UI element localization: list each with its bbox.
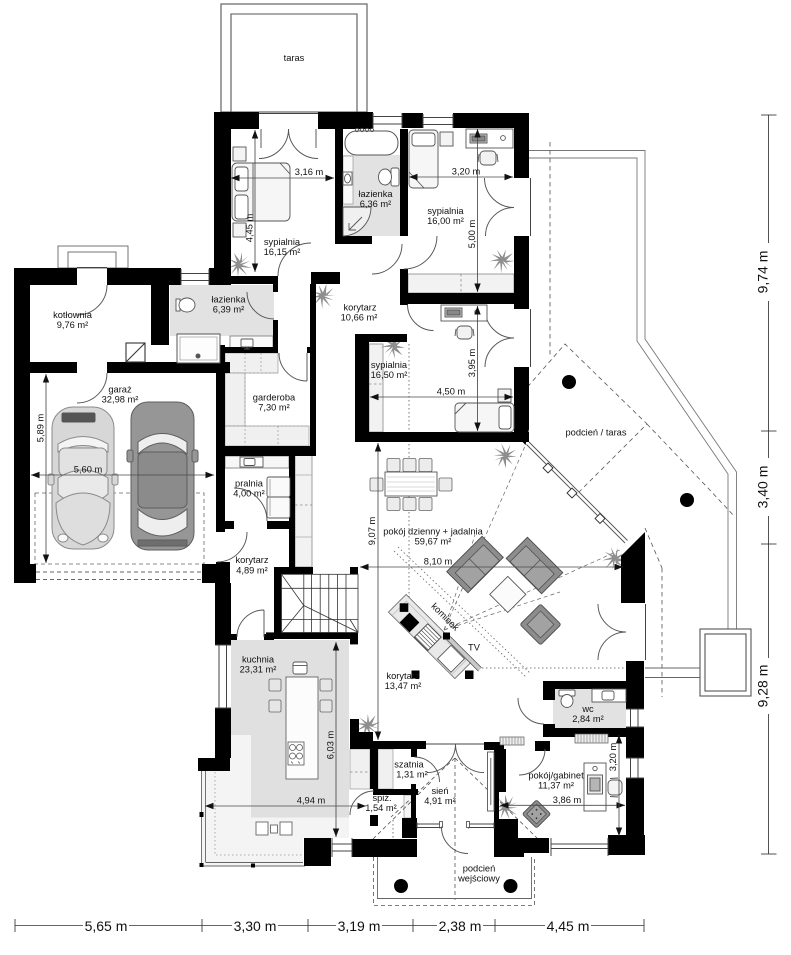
svg-text:kotłownia: kotłownia [53,310,93,320]
svg-text:sypialnia: sypialnia [371,360,408,370]
svg-text:4,00 m²: 4,00 m² [233,489,265,499]
svg-text:korytarz: korytarz [343,303,376,313]
svg-text:1,54 m²: 1,54 m² [365,803,397,813]
svg-text:16,15 m²: 16,15 m² [264,247,301,257]
svg-text:wc: wc [581,704,594,714]
svg-text:16,00 m²: 16,00 m² [427,216,464,226]
svg-text:23,31 m²: 23,31 m² [240,665,277,675]
svg-text:10,66 m²: 10,66 m² [341,313,378,323]
svg-text:łazienka: łazienka [211,295,246,305]
svg-text:3,20 m: 3,20 m [608,743,618,772]
svg-text:taras: taras [284,53,305,63]
svg-text:11,37 m²: 11,37 m² [538,781,574,791]
svg-text:13,47 m²: 13,47 m² [385,681,422,691]
svg-text:podcień: podcień [463,864,496,874]
svg-text:16,50 m²: 16,50 m² [371,370,408,380]
svg-text:4,45 m: 4,45 m [245,214,255,243]
svg-text:5,60 m: 5,60 m [74,465,103,475]
svg-text:4,45 m: 4,45 m [547,918,590,934]
svg-text:4,89 m²: 4,89 m² [236,566,268,576]
svg-text:wejściowy: wejściowy [457,874,500,884]
svg-text:6,03 m: 6,03 m [326,731,336,760]
svg-text:szatnia: szatnia [394,760,424,770]
svg-text:pokój/gabinet: pokój/gabinet [528,771,584,781]
svg-text:kuchnia: kuchnia [242,655,275,665]
svg-text:garaż: garaż [108,385,132,395]
svg-text:3,19 m: 3,19 m [338,918,381,934]
svg-text:6,36 m²: 6,36 m² [360,199,392,209]
svg-text:3,30 m: 3,30 m [234,918,277,934]
svg-text:korytarz: korytarz [386,671,419,681]
svg-text:3,86 m: 3,86 m [553,795,582,805]
svg-text:3,20 m: 3,20 m [452,167,481,177]
svg-text:pokój dzienny + jadalnia: pokój dzienny + jadalnia [383,527,483,537]
svg-text:garderoba: garderoba [253,393,296,403]
svg-text:5,65 m: 5,65 m [85,918,128,934]
svg-text:sypialnia: sypialnia [427,206,464,216]
svg-text:podcień / taras: podcień / taras [566,428,627,438]
svg-text:4,94 m: 4,94 m [297,796,326,806]
svg-text:5,89 m: 5,89 m [36,414,46,443]
svg-text:3,16 m: 3,16 m [295,167,324,177]
svg-text:9,74 m: 9,74 m [755,251,771,294]
svg-text:łazienka: łazienka [358,189,393,199]
svg-text:7,30 m²: 7,30 m² [258,403,290,413]
svg-text:9,28 m: 9,28 m [755,665,771,708]
svg-text:59,67 m²: 59,67 m² [415,537,452,547]
svg-text:TV: TV [468,643,481,653]
svg-text:4,50 m: 4,50 m [437,387,466,397]
svg-text:spiż.: spiż. [372,793,391,803]
svg-text:32,98 m²: 32,98 m² [102,395,139,405]
svg-text:9,76 m²: 9,76 m² [57,320,89,330]
svg-text:1,31 m²: 1,31 m² [396,770,428,780]
svg-text:3,95 m: 3,95 m [467,349,477,378]
svg-text:korytarz: korytarz [235,555,268,565]
svg-text:pralnia: pralnia [235,479,264,489]
svg-text:2,38 m: 2,38 m [439,918,482,934]
svg-text:sypialnia: sypialnia [264,237,301,247]
svg-text:6,39 m²: 6,39 m² [213,305,245,315]
svg-text:2,84 m²: 2,84 m² [572,714,604,724]
svg-text:9,07 m: 9,07 m [367,517,377,546]
svg-text:8,10 m: 8,10 m [424,557,453,567]
svg-text:3,40 m: 3,40 m [755,466,771,509]
svg-text:4,91 m²: 4,91 m² [424,796,456,806]
svg-text:5,00 m: 5,00 m [467,220,477,249]
svg-text:sień: sień [431,786,448,796]
